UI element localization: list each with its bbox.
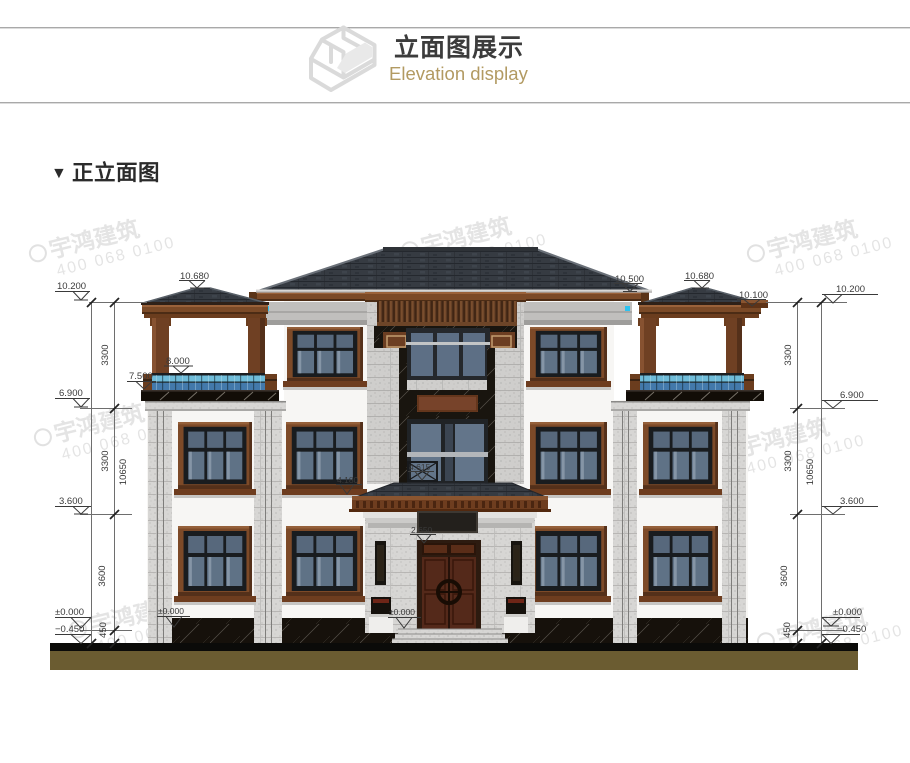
svg-text:7.500: 7.500 (129, 371, 153, 382)
svg-text:−0.450: −0.450 (55, 624, 84, 635)
svg-text:10.100: 10.100 (739, 290, 768, 301)
svg-text:3300: 3300 (100, 450, 111, 471)
svg-text:10.500: 10.500 (615, 274, 644, 285)
svg-text:10.200: 10.200 (836, 284, 865, 295)
svg-text:2.650: 2.650 (411, 525, 433, 535)
svg-text:3600: 3600 (97, 565, 108, 586)
svg-text:正立面图: 正立面图 (72, 160, 160, 185)
svg-text:6.900: 6.900 (59, 388, 83, 399)
svg-text:3300: 3300 (783, 344, 794, 365)
svg-text:4.615: 4.615 (409, 462, 431, 472)
svg-text:3.600: 3.600 (59, 496, 83, 507)
svg-text:10650: 10650 (118, 459, 129, 485)
svg-text:10650: 10650 (805, 459, 816, 485)
svg-text:4.180: 4.180 (337, 475, 359, 485)
svg-text:±0.000: ±0.000 (833, 607, 862, 618)
svg-text:450: 450 (98, 622, 109, 638)
svg-text:▼: ▼ (51, 165, 67, 182)
svg-text:3300: 3300 (100, 344, 111, 365)
svg-text:3300: 3300 (783, 450, 794, 471)
svg-text:立面图展示: 立面图展示 (394, 33, 524, 62)
svg-text:10.680: 10.680 (180, 271, 209, 282)
svg-text:3600: 3600 (779, 565, 790, 586)
svg-text:450: 450 (782, 622, 793, 638)
svg-text:10.680: 10.680 (685, 271, 714, 282)
svg-text:8.000: 8.000 (166, 356, 190, 367)
svg-text:Elevation display: Elevation display (389, 63, 529, 84)
svg-text:−0.450: −0.450 (837, 624, 866, 635)
svg-text:±0.000: ±0.000 (55, 607, 84, 618)
svg-text:±0.000: ±0.000 (389, 607, 415, 617)
svg-text:10.200: 10.200 (57, 281, 86, 292)
svg-text:3.600: 3.600 (840, 496, 864, 507)
svg-text:6.900: 6.900 (840, 390, 864, 401)
svg-text:±0.000: ±0.000 (158, 606, 184, 616)
